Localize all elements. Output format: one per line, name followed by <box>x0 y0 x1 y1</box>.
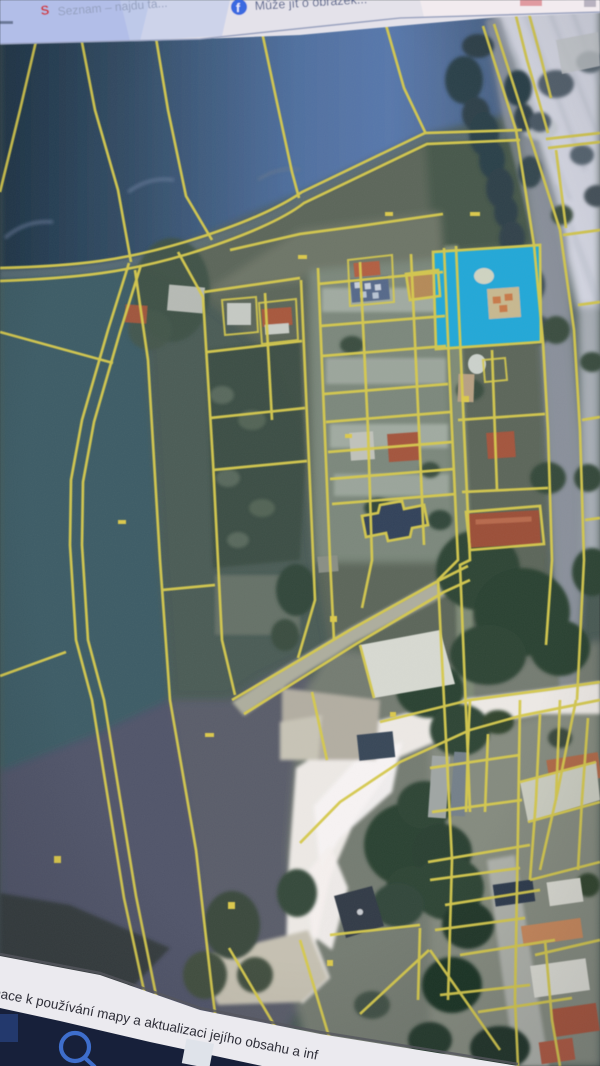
svg-text:S: S <box>40 2 50 18</box>
